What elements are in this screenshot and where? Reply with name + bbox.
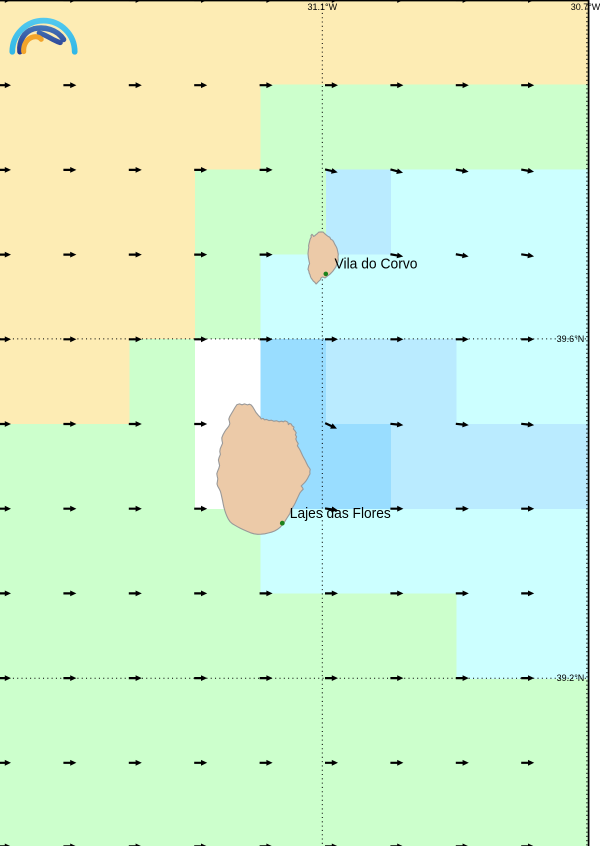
svg-text:39.6°N: 39.6°N xyxy=(557,334,585,344)
svg-text:30.7°W: 30.7°W xyxy=(571,2,600,12)
svg-text:39.2°N: 39.2°N xyxy=(557,673,585,683)
svg-text:Lajes das Flores: Lajes das Flores xyxy=(290,505,391,522)
svg-text:Vila do Corvo: Vila do Corvo xyxy=(335,256,418,273)
svg-text:31.1°W: 31.1°W xyxy=(307,2,337,12)
